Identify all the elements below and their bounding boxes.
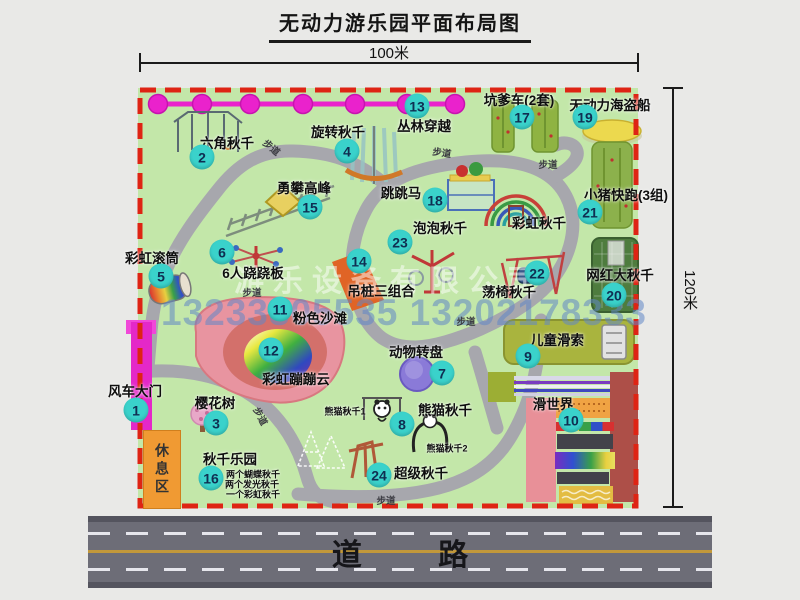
badge-9: 9 xyxy=(516,344,541,369)
badge-18: 18 xyxy=(423,188,448,213)
label-seesaw: 6人跷跷板 xyxy=(222,262,284,282)
rest-area-label: 休息区 xyxy=(152,443,172,497)
label-bubble-swing: 泡泡秋千 xyxy=(413,217,467,237)
badge-16: 16 xyxy=(199,466,224,491)
label-chair-swing: 荡椅秋千 xyxy=(482,281,536,301)
label-jumping-horse: 跳跳马 xyxy=(381,182,422,202)
label-panda-swing-1: 熊猫秋千1 xyxy=(324,405,365,418)
label-pink-beach: 粉色沙滩 xyxy=(293,307,347,327)
label-animal-turntable: 动物转盘 xyxy=(389,341,443,361)
badge-5: 5 xyxy=(149,264,174,289)
badge-4: 4 xyxy=(335,139,360,164)
label-panda-swing-2: 熊猫秋千2 xyxy=(426,442,467,455)
badge-15: 15 xyxy=(298,195,323,220)
walkway-label: 步道 xyxy=(242,285,261,299)
badge-24: 24 xyxy=(367,463,392,488)
badge-10: 10 xyxy=(559,408,584,433)
badge-14: 14 xyxy=(347,249,372,274)
label-swing-park-note-3: 一个彩虹秋千 xyxy=(226,488,280,501)
label-rainbow-bounce-cloud: 彩虹蹦蹦云 xyxy=(262,368,330,388)
walkway-label: 步道 xyxy=(456,314,475,328)
label-jungle-crossing: 丛林穿越 xyxy=(397,115,451,135)
walkway-label: 步道 xyxy=(538,157,557,171)
badge-22: 22 xyxy=(525,261,550,286)
badge-1: 1 xyxy=(124,398,149,423)
road-label: 道 路 xyxy=(298,530,502,574)
badge-8: 8 xyxy=(390,412,415,437)
badge-11: 11 xyxy=(268,297,293,322)
badge-3: 3 xyxy=(204,411,229,436)
badge-13: 13 xyxy=(405,94,430,119)
label-hanging-pile-combo: 吊桩三组合 xyxy=(347,280,415,300)
badge-23: 23 xyxy=(388,230,413,255)
badge-7: 7 xyxy=(430,361,455,386)
badge-2: 2 xyxy=(190,145,215,170)
park-layout-page: 无动力游乐园平面布局图 100米 120米 xyxy=(0,0,800,600)
label-cherry-tree: 樱花树 xyxy=(195,392,236,412)
label-climbing-peak: 勇攀高峰 xyxy=(277,177,331,197)
label-rotating-swing: 旋转秋千 xyxy=(311,121,365,141)
badge-20: 20 xyxy=(602,283,627,308)
label-net-swing: 网红大秋千 xyxy=(586,264,654,284)
rest-area: 休息区 xyxy=(143,430,181,509)
label-panda-swing: 熊猫秋千 xyxy=(418,399,472,419)
badge-19: 19 xyxy=(573,105,598,130)
walkway-label: 步道 xyxy=(376,493,395,507)
walkway-label: 步道 xyxy=(432,144,453,161)
badge-6: 6 xyxy=(210,240,235,265)
badge-21: 21 xyxy=(578,200,603,225)
label-super-swing: 超级秋千 xyxy=(394,462,448,482)
label-rainbow-swing: 彩虹秋千 xyxy=(512,212,566,232)
label-kids-zipline: 儿童滑索 xyxy=(530,329,584,349)
road: 道 路 xyxy=(88,516,712,588)
label-rainbow-roller: 彩虹滚筒 xyxy=(125,247,179,267)
badge-17: 17 xyxy=(510,105,535,130)
badge-12: 12 xyxy=(259,338,284,363)
